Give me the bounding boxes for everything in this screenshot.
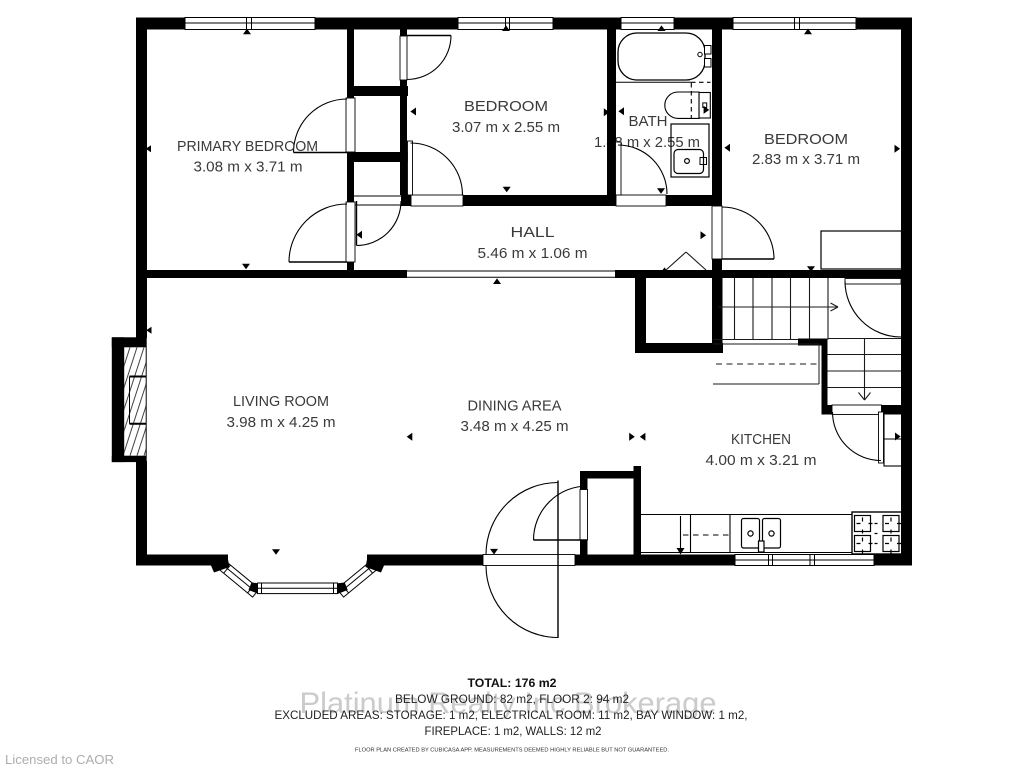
svg-text:4.00 m x 3.21 m: 4.00 m x 3.21 m	[706, 452, 817, 469]
svg-text:DINING AREA: DINING AREA	[468, 398, 563, 415]
svg-text:BEDROOM: BEDROOM	[764, 131, 848, 148]
svg-text:BATH: BATH	[629, 113, 668, 130]
svg-text:FLOOR PLAN CREATED BY CUBICASA: FLOOR PLAN CREATED BY CUBICASA APP. MEAS…	[355, 748, 669, 754]
svg-text:LIVING ROOM: LIVING ROOM	[233, 393, 329, 410]
svg-text:TOTAL: 176 m2: TOTAL: 176 m2	[468, 676, 557, 690]
svg-text:PRIMARY BEDROOM: PRIMARY BEDROOM	[177, 138, 318, 155]
svg-text:2.83 m x 3.71 m: 2.83 m x 3.71 m	[752, 151, 860, 168]
svg-text:Licensed to CAOR: Licensed to CAOR	[5, 752, 114, 767]
svg-text:EXCLUDED AREAS: STORAGE: 1 m2,: EXCLUDED AREAS: STORAGE: 1 m2, ELECTRICA…	[275, 708, 748, 722]
svg-text:BELOW GROUND: 82 m2, FLOOR 2:: BELOW GROUND: 82 m2, FLOOR 2: 94 m2	[395, 692, 629, 706]
svg-text:5.46 m x 1.06 m: 5.46 m x 1.06 m	[478, 245, 588, 262]
svg-text:3.08 m x 3.71 m: 3.08 m x 3.71 m	[194, 159, 303, 176]
svg-text:HALL: HALL	[511, 224, 555, 241]
svg-text:BEDROOM: BEDROOM	[464, 98, 548, 115]
svg-text:3.98 m x 4.25 m: 3.98 m x 4.25 m	[227, 414, 336, 431]
svg-text:FIREPLACE: 1 m2, WALLS: 12 m2: FIREPLACE: 1 m2, WALLS: 12 m2	[425, 724, 602, 738]
svg-text:3.07 m x 2.55 m: 3.07 m x 2.55 m	[452, 119, 560, 136]
svg-text:KITCHEN: KITCHEN	[731, 431, 791, 448]
svg-text:3.48 m x 4.25 m: 3.48 m x 4.25 m	[461, 418, 569, 435]
